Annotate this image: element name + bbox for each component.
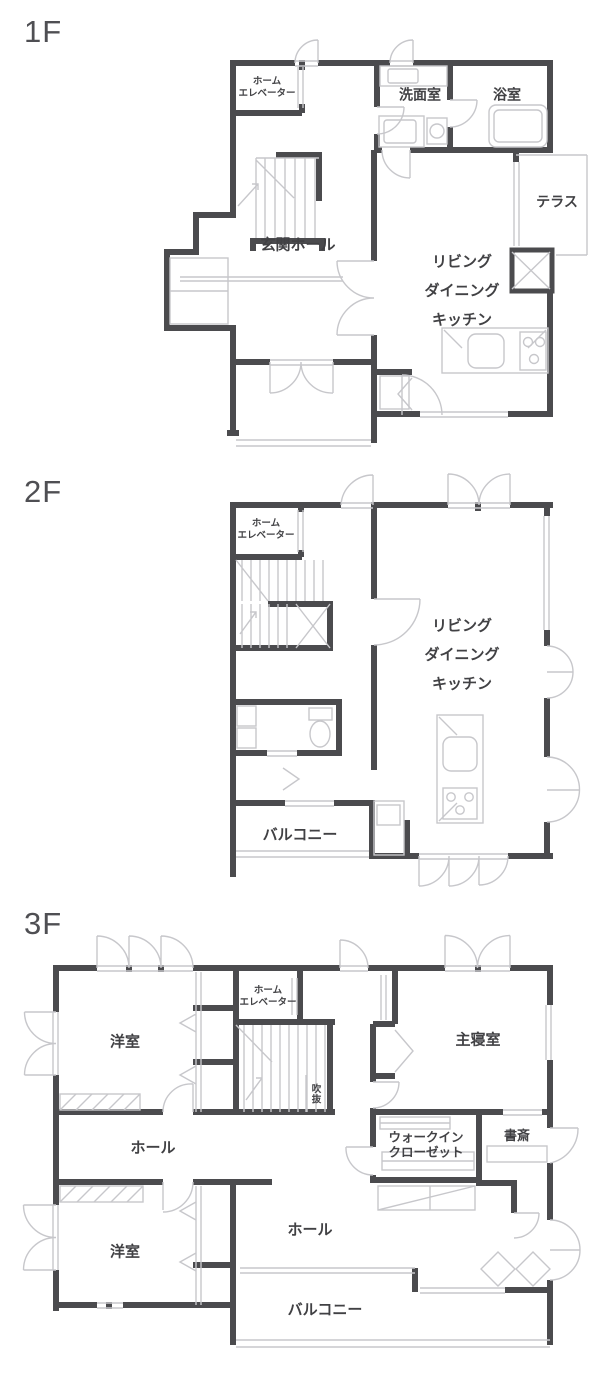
floor-plan-page: 1F — [0, 0, 600, 1380]
room-label-study-3f: 書斎 — [504, 1129, 530, 1144]
room-label-hall-upper-3f: ホール — [130, 1134, 175, 1163]
doors-windows-1f — [270, 40, 519, 417]
room-label-balcony-3f: バルコニー — [288, 1296, 363, 1325]
room-label-western-room-2-3f: 洋室 — [110, 1238, 140, 1267]
room-label-elevator-1f: ホーム エレベーター — [238, 76, 295, 100]
room-label-bathroom-1f: 浴室 — [493, 81, 521, 110]
room-label-washroom-1f: 洗面室 — [399, 81, 441, 110]
room-label-terrace-1f: テラス — [536, 188, 578, 217]
room-label-ldk-1f: リビング ダイニング キッチン — [424, 248, 499, 335]
room-label-balcony-2f: バルコニー — [263, 821, 338, 850]
room-label-master-bedroom-3f: 主寝室 — [455, 1026, 500, 1055]
room-label-ldk-2f: リビング ダイニング キッチン — [424, 612, 499, 699]
room-label-elevator-3f: ホーム エレベーター — [239, 985, 296, 1009]
room-label-walk-in-closet-3f: ウォークイン クローゼット — [388, 1131, 463, 1160]
room-label-elevator-2f: ホーム エレベーター — [237, 518, 294, 542]
room-label-entrance-hall-1f: 玄関ホール — [260, 231, 335, 260]
room-label-western-room-1-3f: 洋室 — [110, 1028, 140, 1057]
room-label-void-3f: 吹抜 — [310, 1084, 321, 1105]
room-label-hall-lower-3f: ホール — [287, 1216, 332, 1245]
stairs-1f — [238, 158, 319, 238]
